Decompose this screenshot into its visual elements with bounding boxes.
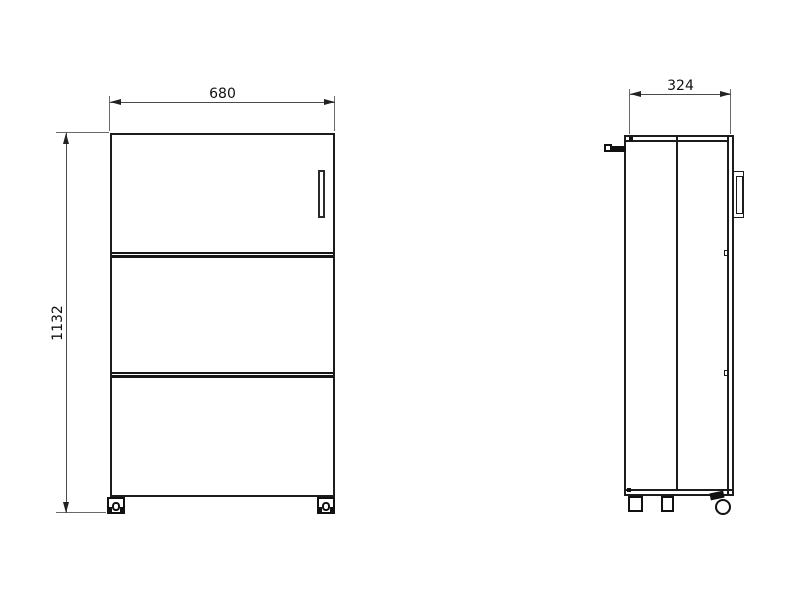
front-view-caster-right — [317, 497, 335, 514]
height-arrow-bottom — [63, 502, 69, 513]
technical-drawing-canvas: 680 1132 324 — [0, 0, 800, 600]
side-view-bottom-panel-line — [626, 489, 732, 491]
front-view-cabinet-outline — [110, 133, 335, 497]
front-view-caster-left — [107, 497, 125, 514]
side-view-top-fitting — [629, 137, 633, 141]
depth-dimension-line — [630, 94, 731, 95]
side-view-drawer-catch-bottom — [724, 370, 728, 376]
side-view-handle-bar — [611, 146, 626, 152]
side-view-leg-rear — [628, 496, 643, 512]
width-dimension-label: 680 — [110, 87, 335, 101]
caster-wheel — [322, 502, 330, 511]
width-dimension-line — [110, 102, 335, 103]
side-view-drawer-catch-top — [724, 250, 728, 256]
height-dimension-label: 1132 — [38, 303, 78, 343]
side-view-door-handle-inner — [736, 176, 743, 214]
side-view-bottom-fitting — [627, 488, 631, 492]
side-view-front-panel-line — [727, 136, 729, 495]
side-view-leg-middle — [661, 496, 674, 512]
height-arrow-top — [63, 133, 69, 144]
front-view-door-handle — [318, 170, 325, 218]
depth-dimension-label: 324 — [630, 79, 731, 93]
side-view-middle-panel-line — [676, 137, 678, 490]
caster-wheel — [112, 502, 120, 511]
side-view-cabinet-outline — [624, 135, 734, 496]
side-view-caster-wheel — [715, 499, 731, 515]
front-view-drawer-divider-top — [112, 252, 333, 258]
front-view-drawer-divider-bottom — [112, 372, 333, 378]
